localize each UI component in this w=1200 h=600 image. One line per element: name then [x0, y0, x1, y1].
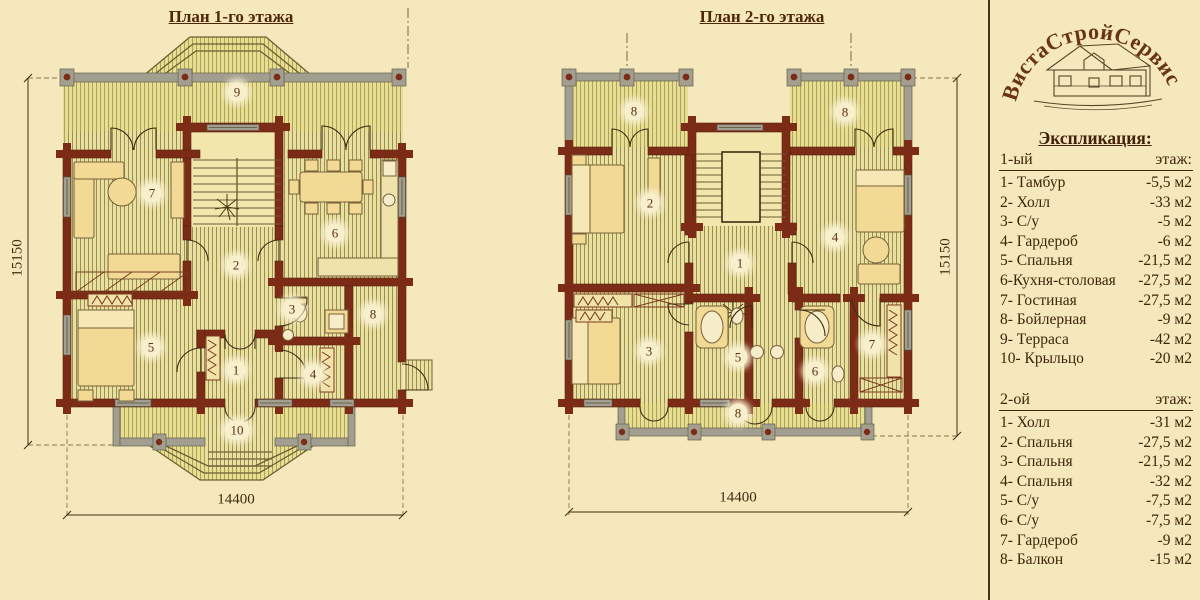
floor1-label: 1-ый	[1000, 151, 1033, 169]
floor2-width-dim: 14400	[719, 490, 757, 507]
legend-row: 8- Балкон-15 м2	[999, 550, 1193, 570]
room-label: 1	[227, 361, 246, 380]
room-label: 4	[304, 365, 323, 384]
legend-row: 7- Гостиная-27,5 м2	[999, 291, 1193, 311]
legend-heading: Экспликация:	[992, 128, 1198, 149]
company-logo: ВистаСтройСервис	[992, 4, 1198, 124]
room-label: 8	[729, 404, 748, 423]
stairs	[193, 158, 281, 226]
room-label: 8	[625, 102, 644, 121]
room-label: 6	[326, 224, 345, 243]
floor1-label-right: этаж:	[1155, 151, 1192, 169]
floor2-label-right: этаж:	[1155, 391, 1192, 409]
legend-row: 8- Бойлерная-9 м2	[999, 310, 1193, 330]
floor1-height-dim: 15150	[10, 239, 27, 277]
legend-row: 5- С/у-7,5 м2	[999, 491, 1193, 511]
legend-floor1-section: 1-ый этаж: 1- Тамбур-5,5 м2 2- Холл-33 м…	[999, 151, 1193, 369]
legend-row: 1- Тамбур-5,5 м2	[999, 173, 1193, 193]
legend-row: 2- Спальня-27,5 м2	[999, 433, 1193, 453]
room-label: 2	[227, 256, 246, 275]
room-label: 3	[283, 300, 302, 319]
room-label: 7	[863, 335, 882, 354]
room-label: 7	[143, 184, 162, 203]
legend-row: 4- Гардероб-6 м2	[999, 232, 1193, 252]
floor2-title: План 2-го этажа	[700, 7, 825, 27]
room-label: 9	[228, 83, 247, 102]
floor2-plan	[558, 33, 957, 515]
panel-divider	[988, 0, 990, 600]
room-label: 1	[731, 254, 750, 273]
room-label: 5	[142, 338, 161, 357]
room-label: 2	[641, 194, 660, 213]
room-label: 5	[729, 348, 748, 367]
legend-row: 10- Крыльцо-20 м2	[999, 349, 1193, 369]
legend-floor1-header: 1-ый этаж:	[999, 151, 1193, 171]
room-label: 6	[806, 362, 825, 381]
stairwell-opening	[722, 152, 760, 222]
legend-row: 4- Спальня-32 м2	[999, 472, 1193, 492]
legend-row: 6-Кухня-столовая-27,5 м2	[999, 271, 1193, 291]
legend-row: 2- Холл-33 м2	[999, 193, 1193, 213]
legend-row: 5- Спальня-21,5 м2	[999, 251, 1193, 271]
legend-row: 6- С/у-7,5 м2	[999, 511, 1193, 531]
legend-row: 7- Гардероб-9 м2	[999, 531, 1193, 551]
floor1-title: План 1-го этажа	[169, 7, 294, 27]
floorplan-sheet: План 1-го этажа План 2-го этажа 15150 14…	[0, 0, 1200, 600]
room-label: 4	[826, 228, 845, 247]
floor2-label: 2-ой	[1000, 391, 1030, 409]
room-label: 8	[364, 305, 383, 324]
legend-floor2-header: 2-ой этаж:	[999, 391, 1193, 411]
legend-row: 3- Спальня-21,5 м2	[999, 452, 1193, 472]
room-label: 3	[640, 342, 659, 361]
legend-panel: ВистаСтройСервис Экспликация: 1-ый этаж:…	[992, 0, 1198, 600]
legend-row: 9- Терраса-42 м2	[999, 330, 1193, 350]
floor1-width-dim: 14400	[217, 492, 255, 509]
floor2-height-dim: 15150	[938, 238, 955, 276]
legend-row: 1- Холл-31 м2	[999, 413, 1193, 433]
legend-floor2-section: 2-ой этаж: 1- Холл-31 м2 2- Спальня-27,5…	[999, 391, 1193, 570]
legend-row: 3- С/у-5 м2	[999, 212, 1193, 232]
room-label: 10	[225, 421, 250, 440]
room-label: 8	[836, 103, 855, 122]
